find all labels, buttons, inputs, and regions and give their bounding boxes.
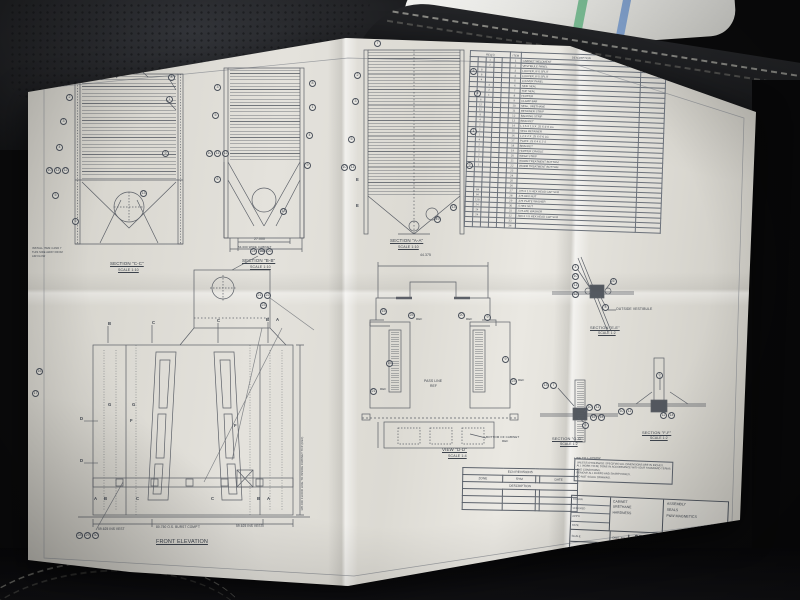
balloon-callout: 30 — [92, 532, 99, 539]
drawing-annotation: VIEW "D-D" — [442, 448, 467, 453]
balloon-callout: 21 — [370, 388, 377, 395]
balloon-callout: 11 — [572, 282, 579, 289]
drawing-annotation: 80.750 O.S. BURST COMP'T — [156, 526, 200, 529]
balloon-callout: 9 — [304, 162, 311, 169]
balloon-callout: 4 — [572, 264, 579, 271]
balloon-callout: 2 — [354, 72, 361, 79]
title-block-title: ASSEMBLY SEALS P&W MAGNETICS — [663, 500, 728, 536]
drawing-annotation: C — [217, 319, 220, 323]
seal-hatch — [475, 332, 483, 390]
drawing-annotation: REF — [416, 318, 422, 321]
balloon-callout: 12 — [62, 167, 69, 174]
balloon-callout: 29 — [84, 532, 91, 539]
front-elevation-view — [78, 322, 310, 530]
balloon-callout: 10 — [586, 404, 593, 411]
balloon-callout: 10 — [618, 408, 625, 415]
drawing-annotation: SECTION "G-G" — [552, 437, 583, 441]
balloon-callout: 8 — [470, 68, 477, 75]
signoff-row: DATE — [571, 521, 609, 530]
balloon-callout: 2 — [66, 94, 73, 101]
drawing-annotation: 27.000 — [254, 238, 265, 241]
drawing-annotation: SECTION "A-A" — [390, 239, 423, 244]
balloon-callout: 6 — [214, 176, 221, 183]
balloon-callout: 6 — [582, 422, 589, 429]
photo-scene: L-070292 REQ'D ITEM DESCRIPTION MAT'L — [0, 0, 800, 600]
scale-cell: SCALE — [570, 530, 610, 543]
detail-44-375 — [370, 262, 496, 326]
louver-hatch — [230, 70, 300, 162]
balloon-callout: 7 — [130, 58, 137, 65]
drawing-annotation: B — [257, 497, 260, 501]
balloon-callout: 11 — [54, 167, 61, 174]
balloon-callout: 4 — [306, 132, 313, 139]
balloon-callout: 5 — [212, 112, 219, 119]
balloon-callout: 6 — [72, 218, 79, 225]
drawing-annotation: D — [80, 459, 83, 463]
title-block-signoff: DRAWN CHECKED APP'D DATE — [571, 496, 611, 531]
balloon-callout: 21 — [256, 292, 263, 299]
balloon-callout: 8 — [168, 74, 175, 81]
title-block-customer: CABINET URETHANE HARDNESS — [610, 497, 664, 532]
balloon-callout: 5 — [602, 304, 609, 311]
engineering-drawing-sheet: L-070292 REQ'D ITEM DESCRIPTION MAT'L — [10, 26, 770, 592]
drawing-annotation: G — [132, 403, 135, 407]
balloon-callout: 26 — [266, 248, 273, 255]
drawing-annotation: REF — [430, 385, 437, 388]
balloon-callout: 9 — [162, 150, 169, 157]
balloon-callout: 14 — [668, 412, 675, 419]
bom-header-matl: MAT'L — [641, 56, 666, 63]
balloon-callout: 3 — [60, 118, 67, 125]
drawing-annotation: FRONT ELEVATION — [156, 540, 208, 546]
balloon-callout: 22 — [264, 292, 271, 299]
balloon-callout: 11 — [214, 150, 221, 157]
balloon-callout: 13 — [280, 208, 287, 215]
balloon-callout: 12 — [590, 414, 597, 421]
drawing-annotation: D — [80, 417, 83, 421]
balloon-callout: 5 — [348, 136, 355, 143]
balloon-callout: 23 — [260, 302, 267, 309]
chute-plate-detail — [180, 256, 314, 482]
drawing-annotation: C — [211, 497, 214, 501]
title-line: P&W MAGNETICS — [666, 513, 727, 521]
drawing-annotation: SCALE 1:2 — [560, 443, 578, 446]
balloon-callout: 3 — [214, 84, 221, 91]
drawing-annotation: SECTION "F-F" — [642, 431, 671, 435]
balloon-callout: 12 — [222, 150, 229, 157]
balloon-callout: 28 — [76, 532, 83, 539]
balloon-callout: 10 — [206, 150, 213, 157]
rev-cell: REV — [710, 536, 726, 548]
drawing-annotation: AIR FLOW — [32, 256, 45, 259]
balloon-callout: 12 — [572, 291, 579, 298]
drawing-annotation: SCALE 1:4 — [448, 455, 467, 459]
drawing-annotation: PASS LINE — [424, 380, 442, 383]
balloon-callout: 4 — [56, 144, 63, 151]
balloon-callout: 19 — [434, 216, 441, 223]
balloon-callout: 25 — [258, 248, 265, 255]
sheet-count: SHEET 1 OF 2 — [570, 542, 726, 556]
title-block: DRAWN CHECKED APP'D DATE CABINET URETHAN… — [569, 495, 729, 556]
balloon-callout: 25 — [408, 312, 415, 319]
seal-hatch — [577, 382, 584, 440]
drawing-annotation: E — [356, 204, 359, 208]
drawing-annotation: B — [108, 322, 111, 326]
drawing-annotation: F — [234, 424, 237, 428]
balloon-callout: 1 — [470, 128, 477, 135]
balloon-callout: 11 — [626, 408, 633, 415]
drawing-annotation: A — [276, 318, 279, 322]
red-approval-stamp — [614, 537, 653, 551]
section-ee-detail — [552, 257, 634, 332]
bill-of-materials: REQ'D ITEM DESCRIPTION MAT'L 11CABINET W… — [464, 50, 667, 234]
balloon-callout: 10 — [572, 273, 579, 280]
paper-surface: L-070292 REQ'D ITEM DESCRIPTION MAT'L — [10, 26, 770, 592]
drawing-annotation: SECTION "E-E" — [590, 326, 620, 330]
drawing-annotation: OUTSIDE VESTIBULE — [616, 308, 652, 311]
balloon-callout: 10 — [341, 164, 348, 171]
drawing-annotation: F — [130, 419, 133, 423]
balloon-callout: 1 — [309, 104, 316, 111]
drawing-annotation: SCALE 1:2 — [650, 437, 668, 440]
section-ff-detail — [618, 358, 706, 412]
balloon-callout: 11 — [594, 404, 601, 411]
drawing-annotation: C — [136, 497, 139, 501]
drawing-annotation: REF — [380, 388, 386, 391]
balloon-callout: 9 — [502, 356, 509, 363]
drawing-annotation: 145.000 FLOOR LINE TO INSIDE CABINET TOP… — [301, 437, 304, 511]
balloon-callout: 3 — [352, 98, 359, 105]
balloon-callout: 10 — [46, 167, 53, 174]
louver-hatch — [82, 76, 176, 180]
balloon-callout: 23 — [510, 378, 517, 385]
drawing-annotation: SECTION "B-B" — [242, 259, 275, 264]
balloon-callout: 4 — [474, 90, 481, 97]
drawing-annotation: SCALE 1:10 — [398, 246, 419, 250]
drawing-content: L-070292 REQ'D ITEM DESCRIPTION MAT'L — [18, 30, 758, 586]
balloon-callout: 9 — [466, 162, 473, 169]
drawing-annotation: B — [266, 318, 269, 322]
drawing-annotation: 59.625 INS VEST — [236, 525, 263, 528]
drawing-annotation: SCALE 1:2 — [598, 332, 616, 335]
balloon-callout: 7 — [374, 40, 381, 47]
drawing-annotation: SCALE 1:10 — [118, 269, 139, 273]
drawing-annotation: 44.375 — [420, 254, 431, 257]
dwg-no-value: L-070292 — [628, 534, 659, 542]
balloon-callout: 13 — [140, 190, 147, 197]
drawing-annotation: REF — [502, 440, 508, 443]
drawing-number-cell: DWG. NO. L-070292 — [610, 531, 710, 546]
general-notes-block: UNLESS OTHERWISE SPECIFIED ALL DIMENSION… — [574, 458, 674, 484]
drawing-annotation: A — [267, 497, 270, 501]
view-dd-detail — [362, 322, 518, 448]
balloon-callout: 14 — [598, 414, 605, 421]
balloon-callout: 11 — [349, 164, 356, 171]
balloon-callout: 13 — [542, 382, 549, 389]
drawing-annotation: SCALE 1:10 — [250, 266, 271, 270]
customer-line: HARDNESS — [612, 510, 662, 518]
drawing-annotation: A — [94, 497, 97, 501]
balloon-callout: 13 — [450, 204, 457, 211]
drawing-annotation: 59.625 INS VEST — [98, 528, 125, 531]
rev-empty-row — [462, 502, 577, 511]
balloon-callout: 7 — [550, 382, 557, 389]
balloon-callout: 20 — [458, 312, 465, 319]
balloon-callout: 9 — [656, 372, 663, 379]
drawing-annotation: C — [152, 321, 155, 325]
drawing-annotation: E — [356, 178, 359, 182]
balloon-callout: 6 — [610, 278, 617, 285]
ecn-revisions-table: ECN REVISIONS ZONE SYM DATE DESCRIPTION — [462, 467, 579, 512]
balloon-callout: 24 — [250, 248, 257, 255]
balloon-callout: 1 — [166, 96, 173, 103]
balloon-callout: 9 — [484, 314, 491, 321]
flag-icon — [49, 63, 54, 69]
drawing-annotation: B — [104, 497, 107, 501]
balloon-callout: 16 — [36, 368, 43, 375]
drawing-annotation: REF — [466, 318, 472, 321]
balloon-callout: 8 — [309, 80, 316, 87]
sheet-number-label: L-070292 — [46, 61, 86, 71]
sheet-number-text: L-070292 — [56, 63, 82, 69]
balloon-callout: 15 — [380, 308, 387, 315]
drawing-annotation: SECTION "C-C" — [110, 262, 144, 267]
balloon-callout: 17 — [32, 390, 39, 397]
balloon-callout: 12 — [660, 412, 667, 419]
balloon-callout: 5 — [52, 192, 59, 199]
drawing-annotation: REF — [518, 379, 524, 382]
balloon-callout: 15 — [386, 360, 393, 367]
louver-hatch — [368, 52, 460, 196]
drawing-annotation: G — [108, 403, 111, 407]
drawing-annotation: LINE TO L-070292 — [574, 457, 601, 460]
